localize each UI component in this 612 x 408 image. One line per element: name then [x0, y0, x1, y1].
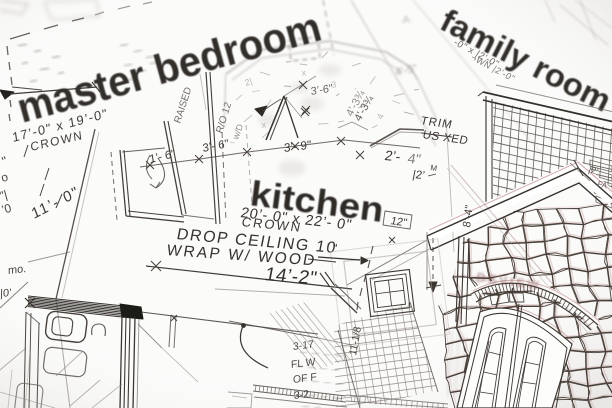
- svg-text:’ ": ’ ": [326, 240, 339, 256]
- svg-text:3-2: 3-2: [294, 388, 309, 402]
- svg-text:|2’: |2’: [411, 169, 425, 182]
- svg-text:3-17: 3-17: [293, 338, 314, 353]
- svg-text:|0’: |0’: [0, 287, 12, 300]
- svg-text:mo.: mo.: [8, 263, 26, 277]
- svg-text:·A·: ·A·: [399, 14, 414, 27]
